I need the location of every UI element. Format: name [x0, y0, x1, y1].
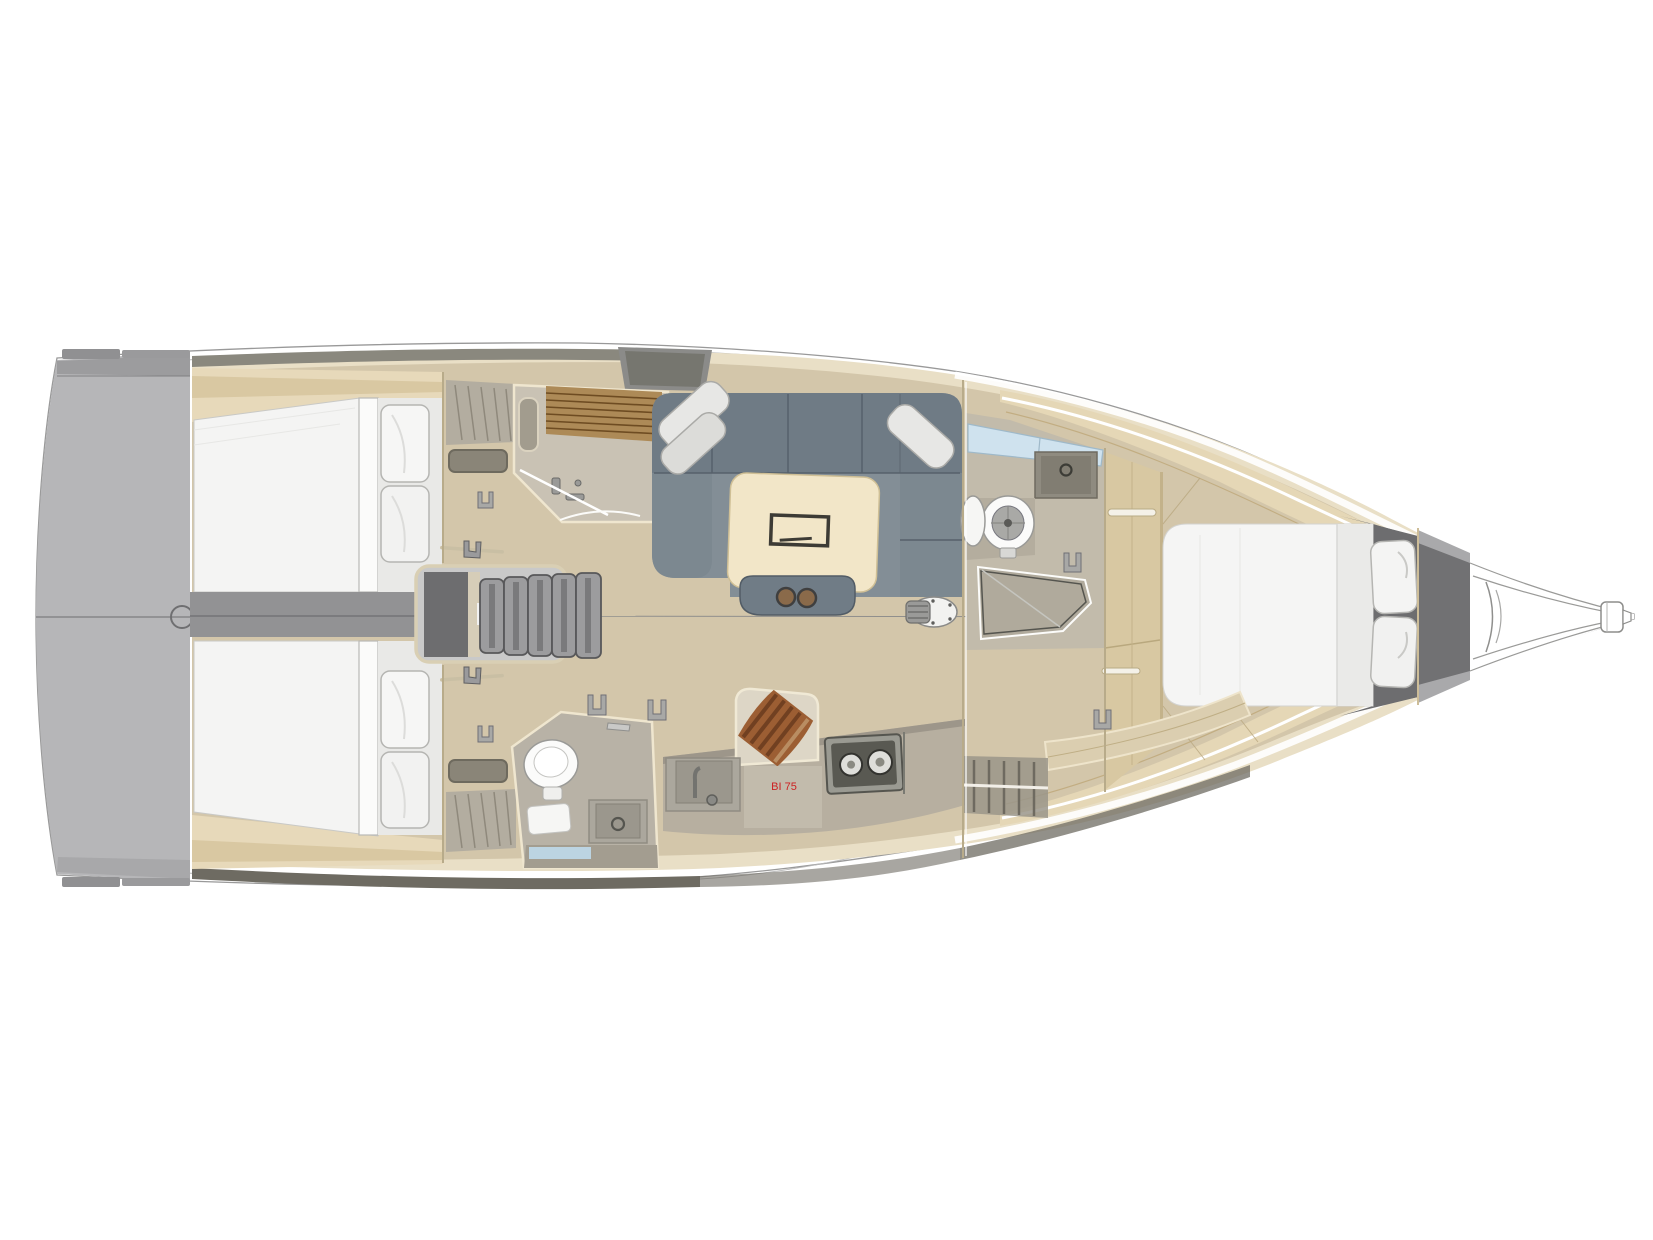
svg-text:BI 75: BI 75: [771, 781, 797, 793]
